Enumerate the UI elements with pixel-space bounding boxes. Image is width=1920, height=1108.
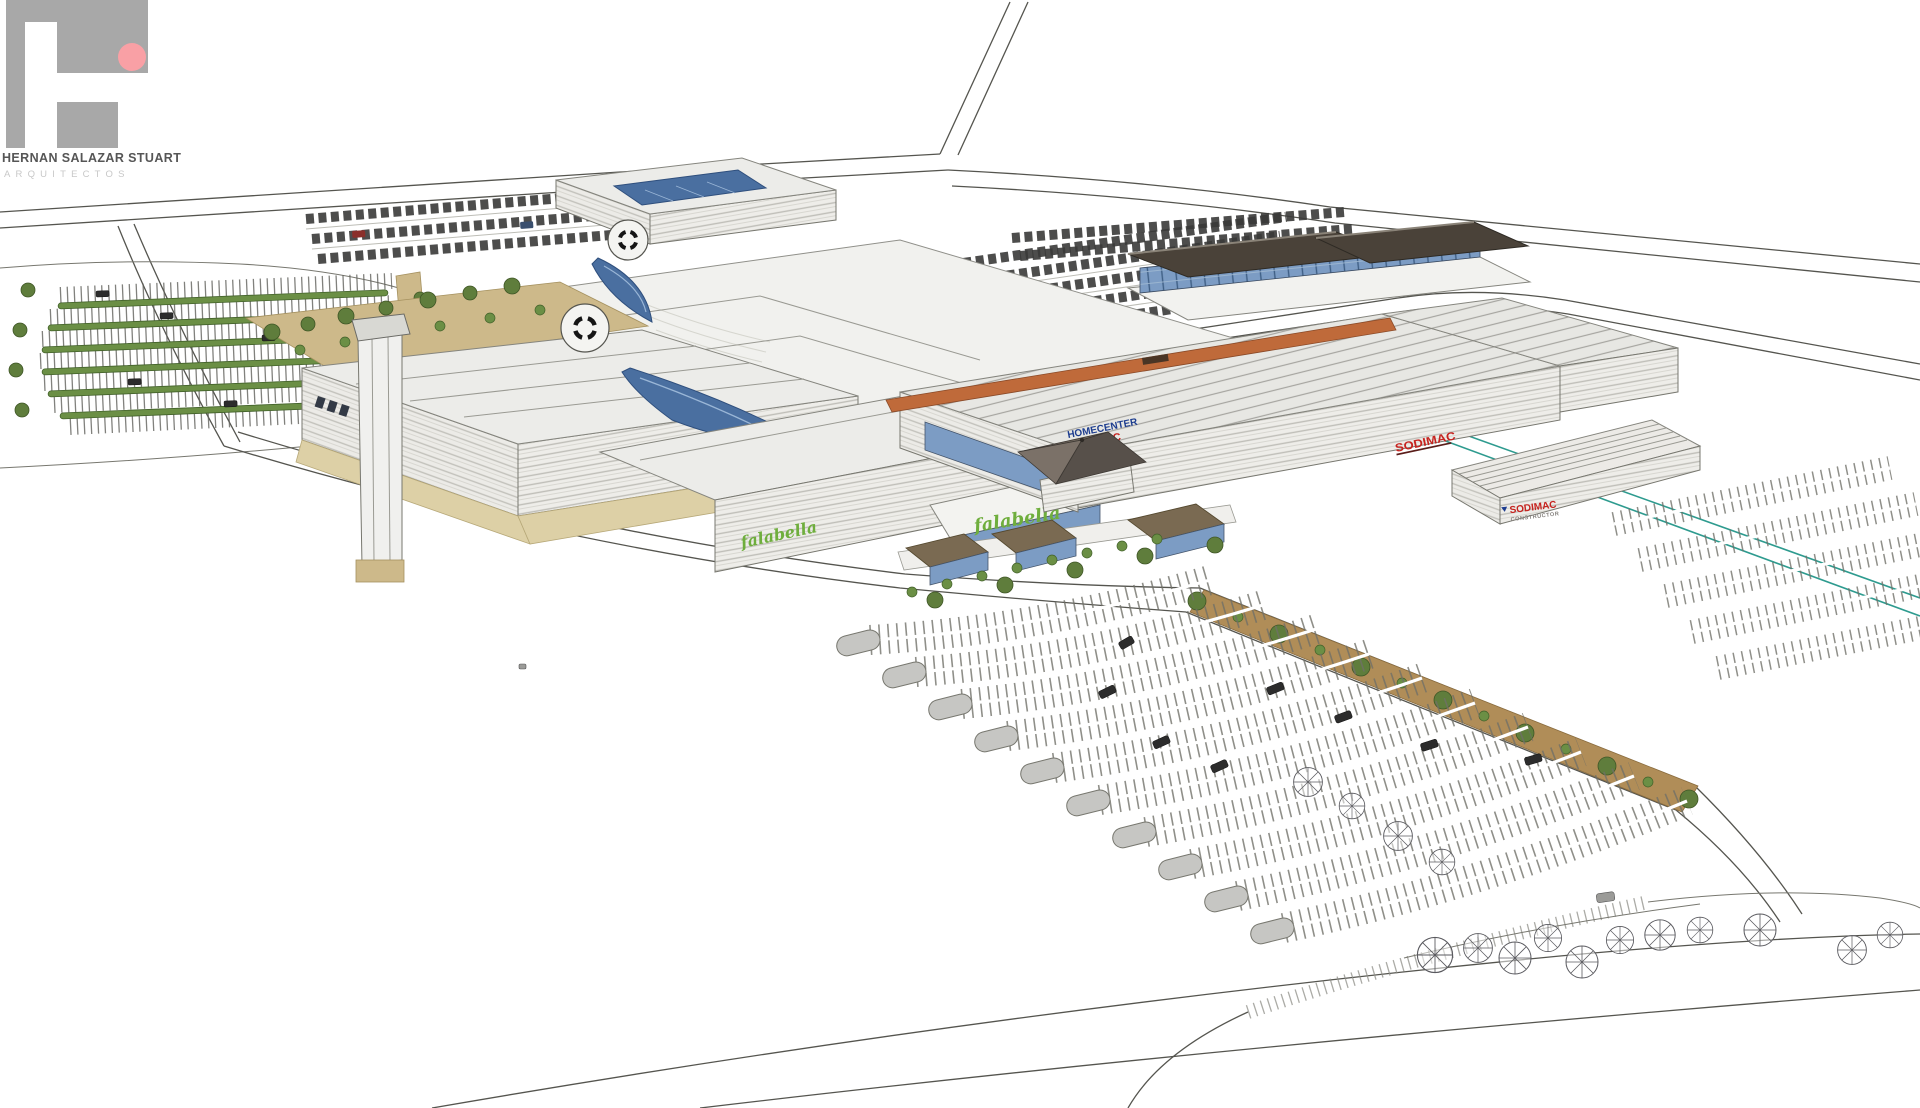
courtyard-pad bbox=[561, 304, 609, 352]
south-ramp bbox=[1128, 1012, 1248, 1108]
parking-lot-east bbox=[1614, 468, 1920, 668]
tower-base bbox=[356, 560, 404, 582]
tree-icon bbox=[1207, 537, 1223, 553]
parking-island bbox=[1203, 884, 1251, 914]
tree-icon bbox=[379, 301, 393, 315]
bush-icon bbox=[1082, 548, 1092, 558]
parking-island bbox=[1111, 820, 1159, 850]
logo-cutout bbox=[57, 73, 148, 102]
car bbox=[1524, 753, 1543, 765]
firm-logo: HERNAN SALAZAR STUART ARQUITECTOS bbox=[2, 0, 181, 180]
tree-icon bbox=[1606, 926, 1633, 953]
bush-icon bbox=[977, 571, 987, 581]
tree-icon bbox=[15, 403, 29, 417]
car bbox=[128, 379, 141, 385]
tree-icon bbox=[1429, 849, 1455, 875]
firm-subtitle: ARQUITECTOS bbox=[4, 169, 130, 180]
car bbox=[519, 664, 526, 669]
architectural-rendering-page: falabella falabella HOMECENTER SODIMAC S… bbox=[0, 0, 1920, 1108]
tree-icon bbox=[301, 317, 315, 331]
logo-cutout bbox=[25, 22, 57, 148]
bush-icon bbox=[1152, 534, 1162, 544]
tree-icon bbox=[1534, 924, 1561, 951]
bush-icon bbox=[1479, 711, 1489, 721]
tree-icon bbox=[504, 278, 520, 294]
tree-icon bbox=[9, 363, 23, 377]
south-boundary-road-2 bbox=[700, 990, 1920, 1108]
bush-icon bbox=[535, 305, 545, 315]
tree-icon bbox=[338, 308, 354, 324]
tree-icon bbox=[1339, 793, 1365, 819]
bush-icon bbox=[1643, 777, 1653, 787]
car bbox=[1420, 739, 1439, 752]
bush-icon bbox=[1012, 563, 1022, 573]
tower-shaft bbox=[358, 333, 402, 566]
tree-icon bbox=[1744, 914, 1776, 946]
tree-icon bbox=[420, 292, 436, 308]
car bbox=[352, 230, 365, 238]
bush-icon bbox=[1117, 541, 1127, 551]
tree-icon bbox=[997, 577, 1013, 593]
tree-icon bbox=[1566, 946, 1598, 978]
parking-island bbox=[1065, 788, 1113, 818]
parking-island bbox=[1157, 852, 1205, 882]
tree-icon bbox=[1434, 691, 1452, 709]
parking-island bbox=[973, 724, 1021, 754]
tree-icon bbox=[927, 592, 943, 608]
bush-icon bbox=[435, 321, 445, 331]
bush-icon bbox=[1047, 555, 1057, 565]
south-boundary-road bbox=[432, 934, 1920, 1108]
tree-lined-drive bbox=[1188, 590, 1698, 812]
car bbox=[96, 291, 109, 297]
drive-south-link bbox=[1695, 786, 1802, 914]
parking-island bbox=[835, 628, 883, 658]
logo-dot bbox=[118, 43, 146, 71]
tree-icon bbox=[1877, 922, 1903, 948]
tree-icon bbox=[1464, 934, 1493, 963]
parking-row-gap bbox=[1718, 628, 1920, 668]
site-rendering: falabella falabella HOMECENTER SODIMAC S… bbox=[0, 0, 1920, 1108]
car bbox=[1596, 891, 1615, 902]
bush-icon bbox=[907, 587, 917, 597]
tree-icon bbox=[264, 324, 280, 340]
tree-icon bbox=[21, 283, 35, 297]
tree-icon bbox=[463, 286, 477, 300]
car bbox=[224, 401, 237, 407]
parking-row bbox=[1284, 801, 1687, 928]
bush-icon bbox=[1315, 645, 1325, 655]
southeast-drive-curb bbox=[1186, 612, 1676, 810]
bush-icon bbox=[485, 313, 495, 323]
parking-island bbox=[927, 692, 975, 722]
tree-icon bbox=[1838, 936, 1867, 965]
firm-name: HERNAN SALAZAR STUART bbox=[2, 151, 181, 165]
sodimac-constructor: SODIMAC CONSTRUCTOR bbox=[1452, 420, 1700, 524]
parking-island bbox=[1249, 916, 1297, 946]
clock-tower bbox=[352, 314, 410, 582]
tree-icon bbox=[1384, 822, 1413, 851]
pavilion-finial bbox=[1080, 438, 1084, 442]
wireframe-tree-cluster bbox=[1294, 768, 1903, 978]
north-exit-road-curb bbox=[958, 2, 1028, 155]
tree-icon bbox=[1687, 917, 1713, 943]
parking-island bbox=[881, 660, 929, 690]
parking-island bbox=[1019, 756, 1067, 786]
logo-mark bbox=[6, 0, 148, 148]
logo-cutout bbox=[118, 102, 148, 148]
bush-icon bbox=[340, 337, 350, 347]
tree-icon bbox=[1417, 937, 1452, 972]
tree-icon bbox=[1067, 562, 1083, 578]
tree-icon bbox=[1188, 592, 1206, 610]
tree-icon bbox=[1499, 942, 1531, 974]
car bbox=[160, 313, 173, 319]
logo-wordmark: HERNAN SALAZAR STUART ARQUITECTOS bbox=[2, 151, 181, 180]
bush-icon bbox=[295, 345, 305, 355]
tree-icon bbox=[1680, 790, 1698, 808]
bush-icon bbox=[942, 579, 952, 589]
courtyard-pad bbox=[608, 220, 648, 260]
car bbox=[1210, 759, 1229, 773]
tree-icon bbox=[1137, 548, 1153, 564]
tree-icon bbox=[13, 323, 27, 337]
car bbox=[520, 221, 533, 229]
tree-icon bbox=[1645, 920, 1675, 950]
tree-icon bbox=[1294, 768, 1323, 797]
north-exit-road bbox=[940, 2, 1010, 154]
